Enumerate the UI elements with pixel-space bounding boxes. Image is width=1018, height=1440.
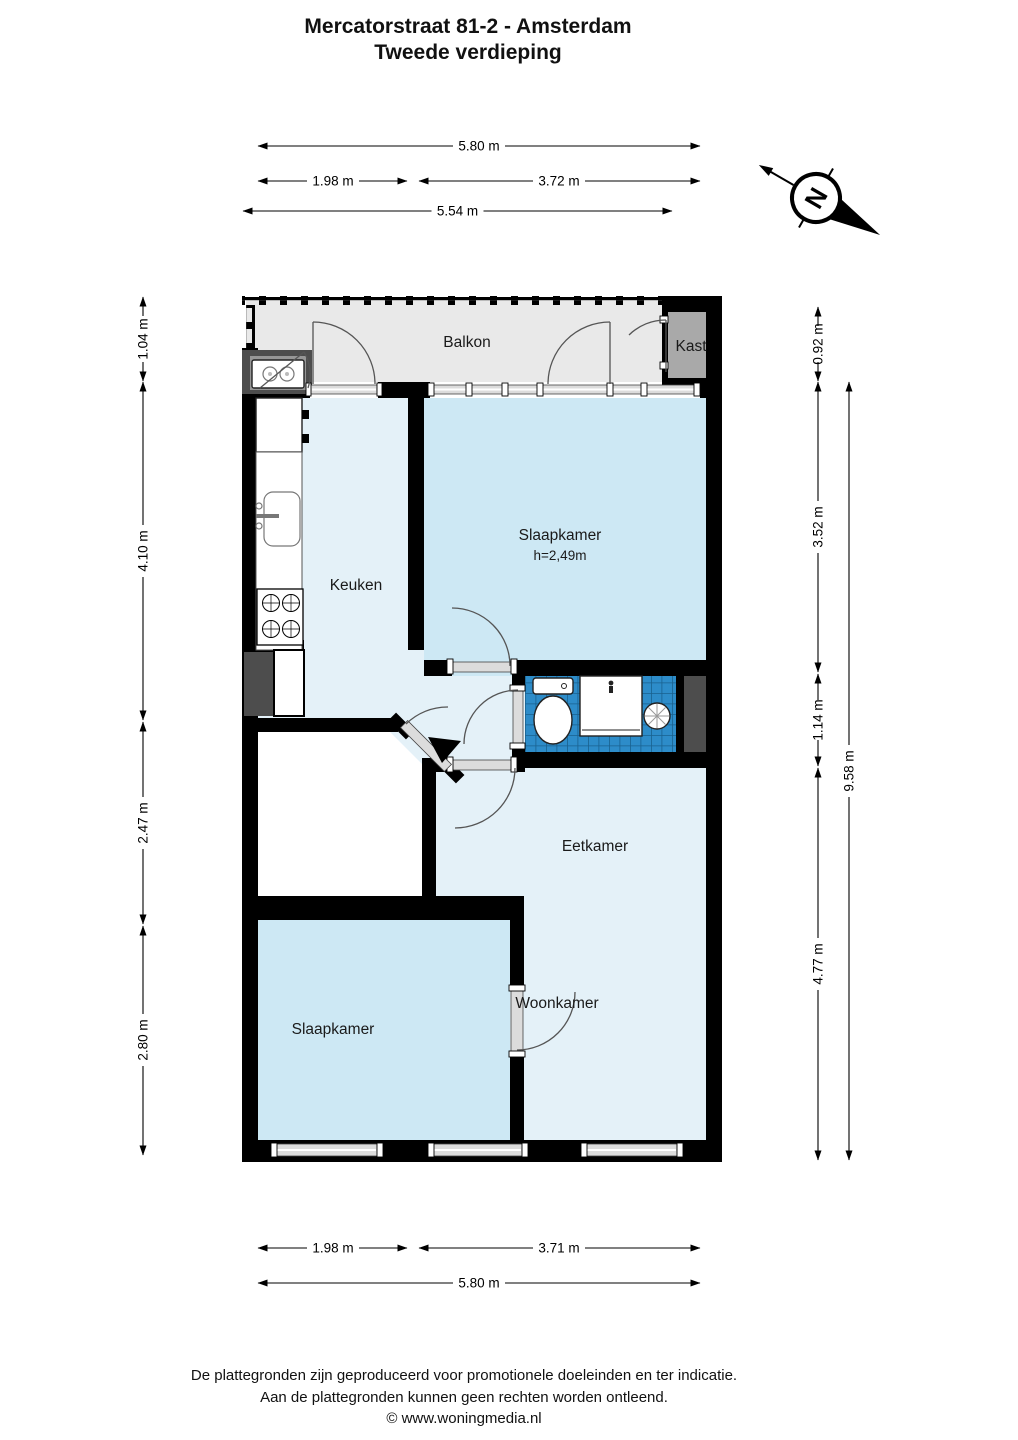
room-label-balkon: Balkon xyxy=(443,334,490,351)
room-label-slaapkamer-top: Slaapkamer xyxy=(519,527,602,544)
svg-text:1.98 m: 1.98 m xyxy=(312,1241,353,1256)
svg-text:5.54 m: 5.54 m xyxy=(437,204,478,219)
compass-north-arrow-icon xyxy=(757,161,774,176)
dimensions-left: 1.04 m 4.10 m 2.47 m 2.80 m xyxy=(136,297,151,1155)
dimension: 1.04 m xyxy=(136,297,151,381)
dimension: 1.14 m xyxy=(811,674,826,766)
svg-text:0.92 m: 0.92 m xyxy=(811,323,826,364)
footer-line1: De plattegronden zijn geproduceerd voor … xyxy=(191,1367,737,1384)
page-subtitle: Tweede verdieping xyxy=(374,41,562,64)
footer-line2: Aan de plattegronden kunnen geen rechten… xyxy=(260,1389,668,1406)
dimension: 5.80 m xyxy=(258,1276,700,1291)
dimensions-top: 5.80 m 1.98 m 3.72 m 5.54 m xyxy=(243,139,700,219)
svg-text:4.77 m: 4.77 m xyxy=(811,943,826,984)
floorplan-page: Mercatorstraat 81-2 - Amsterdam Tweede v… xyxy=(0,0,1018,1440)
svg-text:4.10 m: 4.10 m xyxy=(136,530,151,571)
stove-icon xyxy=(257,589,303,645)
svg-text:3.72 m: 3.72 m xyxy=(538,174,579,189)
footer-line3: © www.woningmedia.nl xyxy=(386,1410,541,1427)
svg-text:3.71 m: 3.71 m xyxy=(538,1241,579,1256)
room-label-slaapkamer-height: h=2,49m xyxy=(534,548,587,563)
svg-text:3.52 m: 3.52 m xyxy=(811,506,826,547)
stairwell-floor xyxy=(258,732,424,896)
shower-drain-icon xyxy=(644,703,670,729)
dimension: 5.54 m xyxy=(243,204,672,219)
svg-text:1.04 m: 1.04 m xyxy=(136,318,151,359)
footer: De plattegronden zijn geproduceerd voor … xyxy=(191,1367,737,1427)
svg-text:2.80 m: 2.80 m xyxy=(136,1019,151,1060)
page-title: Mercatorstraat 81-2 - Amsterdam xyxy=(304,15,631,38)
svg-text:1.98 m: 1.98 m xyxy=(312,174,353,189)
dimension: 4.77 m xyxy=(811,768,826,1160)
dimension: 4.10 m xyxy=(136,382,151,720)
svg-text:1.14 m: 1.14 m xyxy=(811,699,826,740)
dimension: 1.98 m xyxy=(258,174,407,189)
dimension: 3.71 m xyxy=(419,1241,700,1256)
dimensions-right: 0.92 m 3.52 m 1.14 m 4.77 m 9.58 m xyxy=(811,307,857,1160)
svg-text:2.47 m: 2.47 m xyxy=(136,802,151,843)
shaft xyxy=(684,676,706,752)
dimension: 3.52 m xyxy=(811,382,826,672)
dimension: 9.58 m xyxy=(842,382,857,1160)
room-label-slaapkamer-bottom: Slaapkamer xyxy=(292,1021,375,1038)
dimensions-bottom: 1.98 m 3.71 m 5.80 m xyxy=(258,1241,700,1291)
floorplan-canvas: Mercatorstraat 81-2 - Amsterdam Tweede v… xyxy=(0,0,1018,1440)
compass-rose: N xyxy=(742,136,897,265)
dimension: 0.92 m xyxy=(811,307,826,381)
fridge-icon xyxy=(256,398,302,452)
room-label-kast: Kast xyxy=(675,338,707,355)
toilet-icon xyxy=(533,678,573,744)
svg-text:9.58 m: 9.58 m xyxy=(842,750,857,791)
dimension: 3.72 m xyxy=(419,174,700,189)
washer-enclosure xyxy=(242,350,312,394)
dimension: 2.80 m xyxy=(136,926,151,1155)
dimension: 5.80 m xyxy=(258,139,700,154)
svg-text:5.80 m: 5.80 m xyxy=(458,1276,499,1291)
washbasin-icon xyxy=(580,676,642,736)
room-label-woonkamer: Woonkamer xyxy=(515,995,598,1012)
svg-text:5.80 m: 5.80 m xyxy=(458,139,499,154)
room-label-eetkamer: Eetkamer xyxy=(562,838,628,855)
dimension: 1.98 m xyxy=(258,1241,407,1256)
room-label-keuken: Keuken xyxy=(330,577,383,594)
dimension: 2.47 m xyxy=(136,722,151,924)
